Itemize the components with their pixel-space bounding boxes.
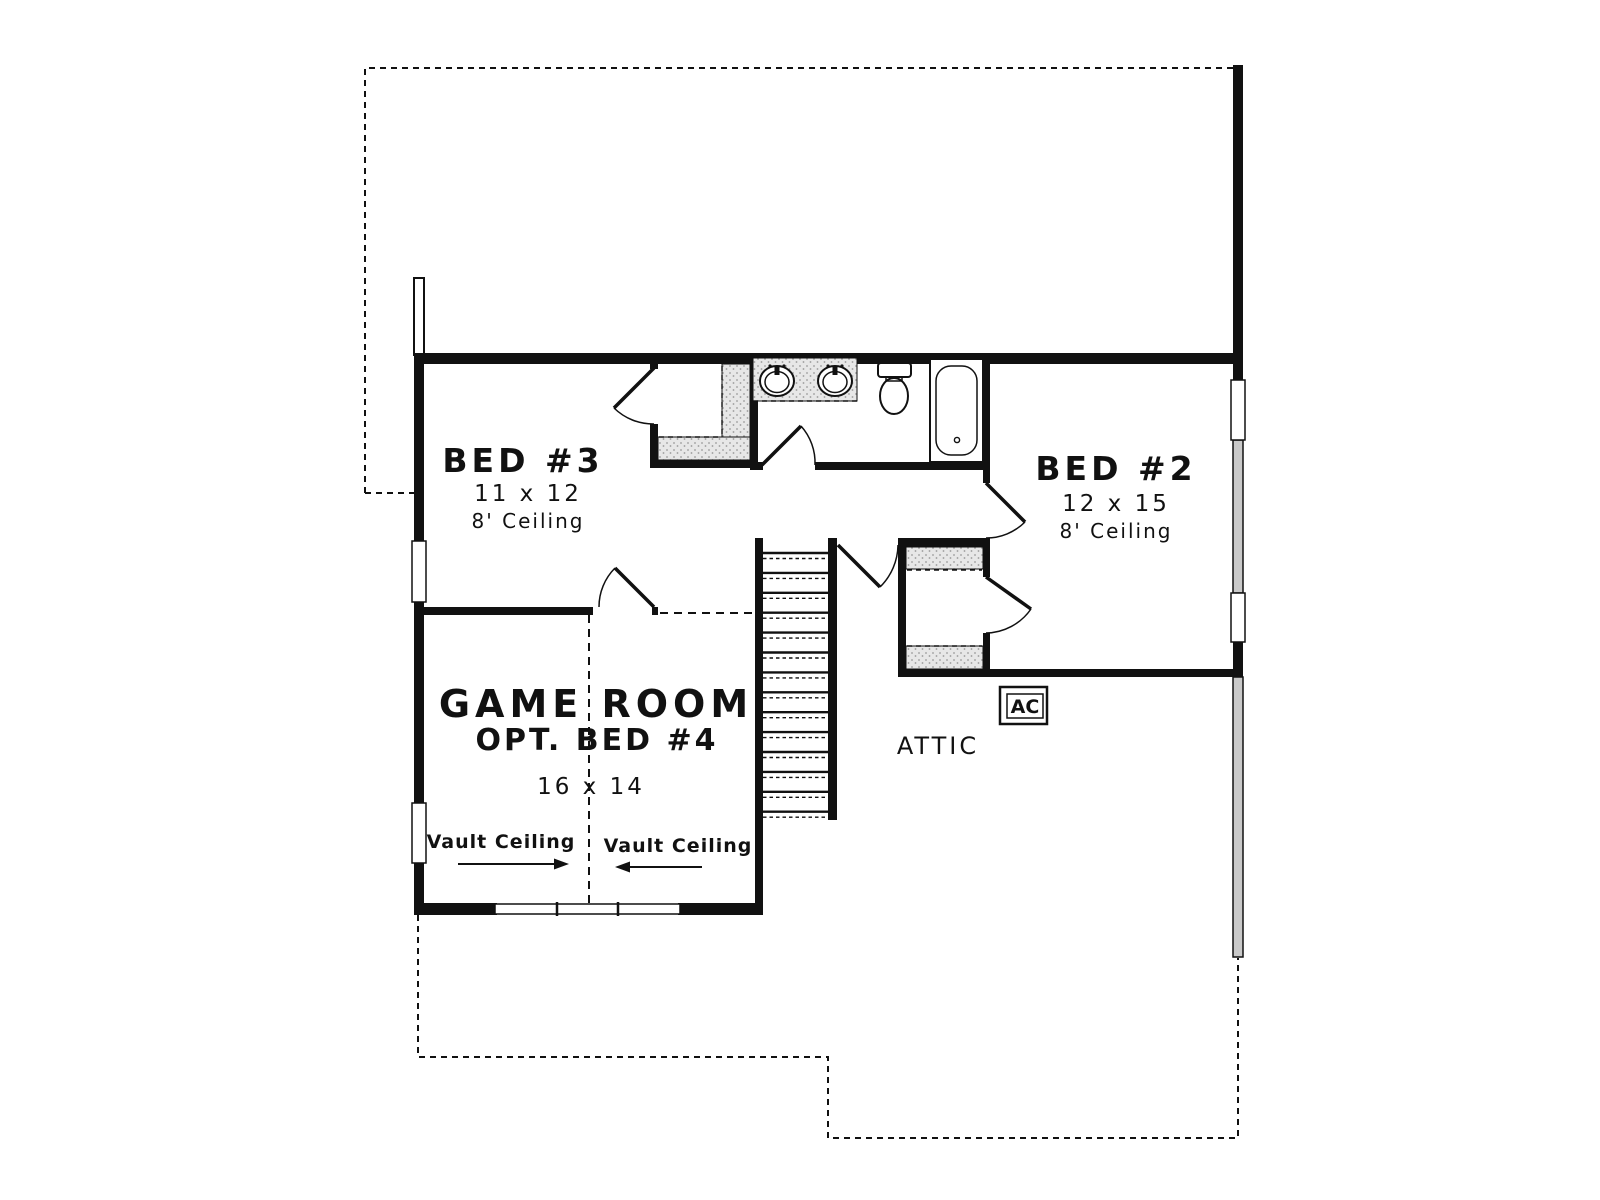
bed3-door-arc bbox=[599, 568, 615, 607]
gameroom-top-wall bbox=[414, 607, 593, 615]
bed2-door-leaf bbox=[986, 483, 1025, 522]
room-labels: BED #3 11 x 12 8' Ceiling BED #2 12 x 15… bbox=[439, 441, 1197, 800]
bathroom-door-leaf bbox=[762, 426, 801, 465]
sink-left-knob-b bbox=[782, 364, 785, 367]
vault-right-arrow-head bbox=[615, 862, 630, 873]
toilet-tank bbox=[878, 363, 911, 377]
bed3-door-leaf bbox=[615, 568, 654, 607]
staircase-treads bbox=[763, 553, 828, 817]
left-wall-upper-stub bbox=[414, 278, 424, 355]
toilet-bowl bbox=[880, 378, 908, 414]
bed2-door-jamb bbox=[983, 470, 990, 483]
bathroom-fixtures bbox=[753, 358, 983, 462]
bed3-closet-bottom-wall bbox=[650, 460, 758, 468]
sink-left-faucet bbox=[775, 366, 780, 375]
bed3-closet-door-leaf bbox=[614, 368, 654, 408]
right-wall-upper bbox=[1233, 65, 1243, 380]
gameroom-name: GAME ROOM bbox=[439, 682, 753, 726]
bed3-name: BED #3 bbox=[442, 441, 603, 480]
bed2-name: BED #2 bbox=[1035, 449, 1196, 488]
bed3-closet-door-arc bbox=[614, 408, 654, 424]
bed2-closet-left-wall bbox=[898, 538, 906, 677]
ac-unit: AC bbox=[1000, 687, 1047, 724]
bed3-ceiling: 8' Ceiling bbox=[472, 509, 585, 533]
stairs-left-wall bbox=[755, 538, 763, 915]
sink-right-faucet bbox=[833, 366, 838, 375]
gameroom-bottom-window-band bbox=[495, 904, 680, 914]
stairs-right-wall bbox=[828, 538, 837, 820]
left-wall-mid bbox=[414, 602, 424, 803]
bed2-right-window-upper bbox=[1231, 380, 1245, 440]
bath-bottom-wall bbox=[815, 462, 990, 470]
ac-unit-label: AC bbox=[1011, 696, 1040, 718]
sink-right-knob-a bbox=[826, 364, 829, 367]
vault-ceiling-left-label: Vault Ceiling bbox=[427, 831, 576, 853]
bottom-wall-left bbox=[414, 903, 497, 915]
bed2-ceiling: 8' Ceiling bbox=[1060, 519, 1173, 543]
floor-plan-page: AC BED #3 11 x 12 8' Ceiling BED #2 12 x… bbox=[0, 0, 1600, 1200]
bed2-closet-shelf-bottom bbox=[906, 646, 983, 669]
vault-ceiling-right-label: Vault Ceiling bbox=[604, 835, 753, 857]
bed3-size: 11 x 12 bbox=[474, 481, 582, 507]
bed2-closet-right-wall-top bbox=[983, 538, 990, 577]
vault-left-arrow-head bbox=[554, 859, 569, 870]
bath-right-wall bbox=[983, 355, 990, 470]
right-wall-mid-gray bbox=[1233, 440, 1243, 593]
bed3-left-window bbox=[412, 541, 426, 602]
attic-door-arc bbox=[880, 545, 898, 587]
floor-plan-drawing: AC BED #3 11 x 12 8' Ceiling BED #2 12 x… bbox=[0, 0, 1600, 1200]
bed2-closet-shelf-top bbox=[906, 547, 983, 569]
roof-outline bbox=[365, 68, 1238, 1138]
bed2-right-window-lower bbox=[1231, 593, 1245, 642]
bottom-wall-right bbox=[678, 903, 763, 915]
right-wall-lower-black bbox=[1233, 642, 1243, 677]
bed2-door-arc bbox=[986, 522, 1025, 538]
roof-outline-bottom bbox=[418, 915, 1238, 1138]
right-wall-bottom-gray bbox=[1233, 677, 1243, 957]
roof-outline-top-left bbox=[365, 68, 1236, 493]
bed2-closet-door-arc bbox=[986, 609, 1031, 633]
bed3-door-jamb bbox=[652, 607, 658, 615]
bed2-bottom-wall bbox=[990, 669, 1233, 677]
gameroom-size: 16 x 14 bbox=[537, 774, 645, 800]
bathroom-door-arc bbox=[801, 426, 815, 465]
bath-bottom-wall-stub bbox=[750, 462, 763, 470]
sink-left-knob-a bbox=[768, 364, 771, 367]
ceiling-lines bbox=[589, 613, 755, 903]
bed2-size: 12 x 15 bbox=[1062, 491, 1170, 517]
sink-right-knob-b bbox=[840, 364, 843, 367]
attic-door-leaf bbox=[838, 545, 880, 587]
bed3-closet-shelf-bottom bbox=[658, 437, 750, 460]
attic-label: ATTIC bbox=[897, 732, 979, 760]
left-wall-bed3 bbox=[414, 353, 424, 541]
bed2-closet-top-wall bbox=[898, 538, 983, 547]
gameroom-left-window bbox=[412, 803, 426, 863]
bed2-closet-bottom-wall bbox=[898, 669, 990, 677]
bed2-closet-door-leaf bbox=[986, 577, 1031, 609]
vault-ceiling-annotations: Vault Ceiling Vault Ceiling bbox=[427, 831, 753, 873]
gameroom-option: OPT. BED #4 bbox=[476, 723, 719, 758]
